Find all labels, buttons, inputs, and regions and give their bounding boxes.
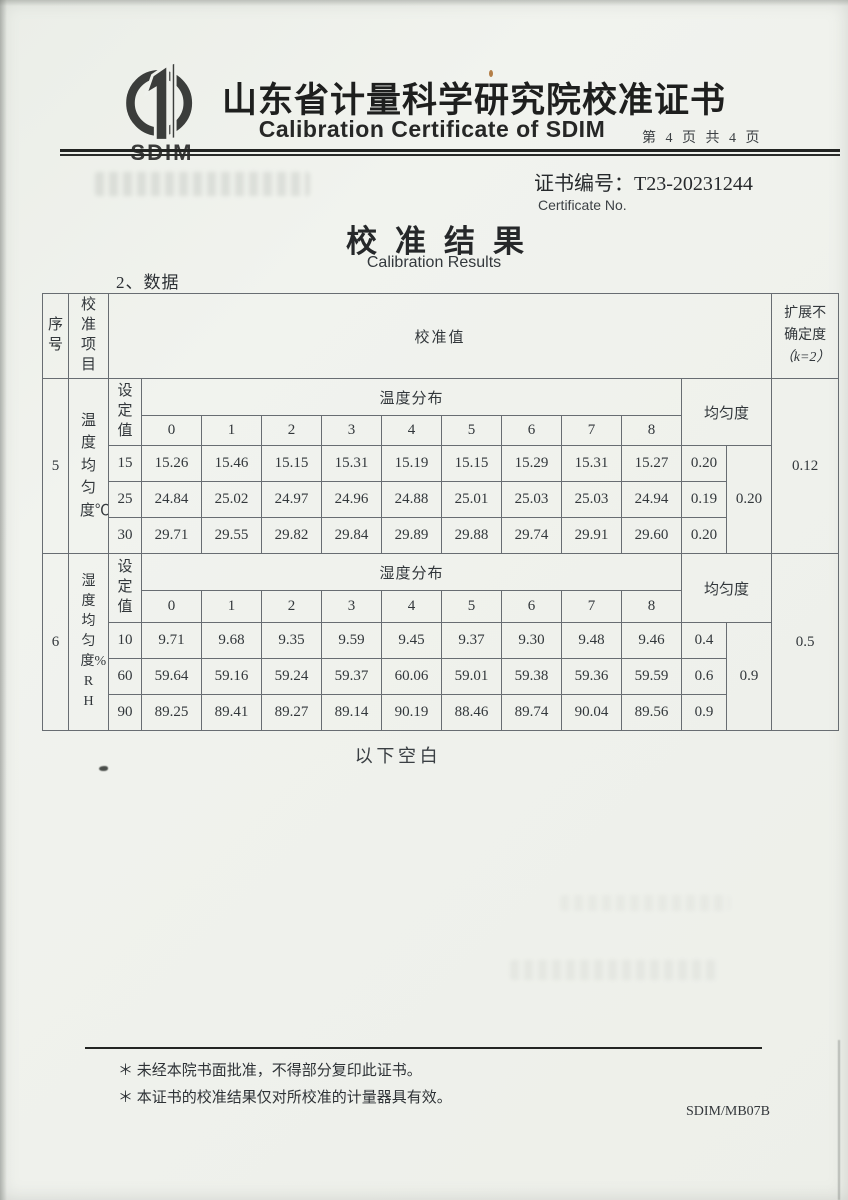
measurement: 25.03 [562,482,622,518]
measurement: 29.82 [262,518,322,554]
measurement: 25.02 [202,482,262,518]
measurement: 59.38 [502,659,562,695]
measurement: 25.03 [502,482,562,518]
measurement: 89.41 [202,695,262,731]
set-value: 60 [109,659,142,695]
row-uniformity: 0.20 [682,446,727,482]
temp-row-25: 25 24.84 25.02 24.97 24.96 24.88 25.01 2… [43,482,839,518]
point-header: 7 [562,591,622,623]
row-uniformity: 0.6 [682,659,727,695]
humidity-row-60: 60 59.64 59.16 59.24 59.37 60.06 59.01 5… [43,659,839,695]
measurement: 59.64 [142,659,202,695]
measurement: 59.36 [562,659,622,695]
measurement: 15.15 [262,446,322,482]
item-cell-temperature: 温度均匀度℃ [69,379,109,554]
measurement: 29.60 [622,518,682,554]
set-value: 90 [109,695,142,731]
measurement: 29.91 [562,518,622,554]
measurement: 29.55 [202,518,262,554]
col-header-item: 校准项目 [69,294,109,379]
temp-row-15: 15 15.26 15.46 15.15 15.31 15.19 15.15 1… [43,446,839,482]
set-value: 30 [109,518,142,554]
point-header: 0 [142,416,202,446]
temp-row-30: 30 29.71 29.55 29.82 29.84 29.89 29.88 2… [43,518,839,554]
humidity-overall-uniformity: 0.9 [727,623,772,731]
measurement: 59.16 [202,659,262,695]
measurement: 9.46 [622,623,682,659]
set-value-header: 设定值 [109,554,142,623]
measurement: 15.26 [142,446,202,482]
header-rule-thick [60,149,840,152]
humidity-row-10: 10 9.71 9.68 9.35 9.59 9.45 9.37 9.30 9.… [43,623,839,659]
point-header: 2 [262,416,322,446]
form-code: SDIM/MB07B [634,1104,770,1120]
measurement: 24.94 [622,482,682,518]
header-rule-thin [60,154,840,156]
measurement: 60.06 [382,659,442,695]
certificate-number-label: 证书编号： [534,173,634,195]
measurement: 24.96 [322,482,382,518]
point-header: 4 [382,591,442,623]
row-uniformity: 0.20 [682,518,727,554]
measurement: 9.37 [442,623,502,659]
measurement: 9.48 [562,623,622,659]
measurement: 9.68 [202,623,262,659]
measurement: 9.45 [382,623,442,659]
measurement: 9.30 [502,623,562,659]
set-value-header: 设定值 [109,379,142,446]
measurement: 59.37 [322,659,382,695]
point-header: 1 [202,416,262,446]
measurement: 29.74 [502,518,562,554]
row-uniformity: 0.9 [682,695,727,731]
certificate-number-value: T23-20231244 [634,173,753,195]
measurement: 89.74 [502,695,562,731]
temp-distribution-header-row: 5 温度均匀度℃ 设定值 温度分布 均匀度 0.12 [43,379,839,416]
measurement: 89.25 [142,695,202,731]
measurement: 15.15 [442,446,502,482]
measurement: 15.31 [322,446,382,482]
footer-note-1: ＊ 未经本院书面批准，不得部分复印此证书。 [118,1059,422,1080]
calibration-results-table: 序号 校准项目 校准值 扩展不 确定度 （k=2） 5 温度均匀度℃ 设定值 温… [42,293,839,731]
measurement: 89.27 [262,695,322,731]
humidity-expanded-uncertainty: 0.5 [772,554,839,731]
set-value: 10 [109,623,142,659]
blank-below-note: 以下空白 [0,742,796,768]
measurement: 90.04 [562,695,622,731]
point-header: 8 [622,591,682,623]
measurement: 29.84 [322,518,382,554]
measurement: 59.59 [622,659,682,695]
point-header: 2 [262,591,322,623]
humidity-distribution-label: 湿度分布 [142,554,682,591]
measurement: 59.24 [262,659,322,695]
page-number: 第 4 页 共 4 页 [642,127,763,147]
point-header: 4 [382,416,442,446]
measurement: 89.56 [622,695,682,731]
certificate-number-caption: Certificate No. [538,197,627,213]
item-cell-humidity: 湿度均匀度%RH [69,554,109,731]
point-header: 5 [442,416,502,446]
scan-edge-line-right [838,1040,840,1200]
measurement: 9.35 [262,623,322,659]
temp-distribution-label: 温度分布 [142,379,682,416]
set-value: 25 [109,482,142,518]
measurement: 90.19 [382,695,442,731]
uniformity-header: 均匀度 [682,379,772,446]
ghost-bleedthrough-text [560,895,730,911]
measurement: 59.01 [442,659,502,695]
point-header: 5 [442,591,502,623]
point-header: 6 [502,591,562,623]
point-header: 3 [322,416,382,446]
measurement: 24.97 [262,482,322,518]
point-header: 3 [322,591,382,623]
measurement: 29.88 [442,518,502,554]
point-header: 8 [622,416,682,446]
certificate-number: 证书编号：T23-20231244 [534,167,753,196]
table-header-row: 序号 校准项目 校准值 扩展不 确定度 （k=2） [43,294,839,379]
temp-overall-uniformity: 0.20 [727,446,772,554]
point-header: 1 [202,591,262,623]
point-header: 0 [142,591,202,623]
temp-expanded-uncertainty: 0.12 [772,379,839,554]
measurement: 25.01 [442,482,502,518]
data-section-label: 2、数据 [116,268,180,293]
scan-edge-shadow-top [0,0,848,6]
measurement: 24.88 [382,482,442,518]
ghost-bleedthrough-text [95,172,310,196]
scan-edge-shadow-left [0,0,7,1200]
measurement: 88.46 [442,695,502,731]
measurement: 15.29 [502,446,562,482]
uniformity-header: 均匀度 [682,554,772,623]
measurement: 29.89 [382,518,442,554]
institute-title-en: Calibration Certificate of SDIM [222,116,642,143]
humidity-row-90: 90 89.25 89.41 89.27 89.14 90.19 88.46 8… [43,695,839,731]
measurement: 89.14 [322,695,382,731]
measurement: 15.27 [622,446,682,482]
col-header-calibration-value: 校准值 [109,294,772,379]
footer-note-2: ＊ 本证书的校准结果仅对所校准的计量器具有效。 [118,1086,452,1107]
footer-rule [85,1047,762,1049]
col-header-seq: 序号 [43,294,69,379]
measurement: 15.31 [562,446,622,482]
measurement: 24.84 [142,482,202,518]
logo-text: SDIM [103,140,221,166]
measurement: 9.71 [142,623,202,659]
measurement: 9.59 [322,623,382,659]
seq-cell: 6 [43,554,69,731]
measurement: 29.71 [142,518,202,554]
point-header: 6 [502,416,562,446]
set-value: 15 [109,446,142,482]
measurement: 15.19 [382,446,442,482]
humidity-distribution-header-row: 6 湿度均匀度%RH 设定值 湿度分布 均匀度 0.5 [43,554,839,591]
sdim-logo-icon [114,60,210,146]
row-uniformity: 0.19 [682,482,727,518]
row-uniformity: 0.4 [682,623,727,659]
point-header: 7 [562,416,622,446]
certificate-page: SDIM 山东省计量科学研究院校准证书 Calibration Certific… [0,0,848,1200]
ghost-bleedthrough-text [510,960,720,980]
measurement: 15.46 [202,446,262,482]
seq-cell: 5 [43,379,69,554]
col-header-uncertainty: 扩展不 确定度 （k=2） [772,294,839,379]
